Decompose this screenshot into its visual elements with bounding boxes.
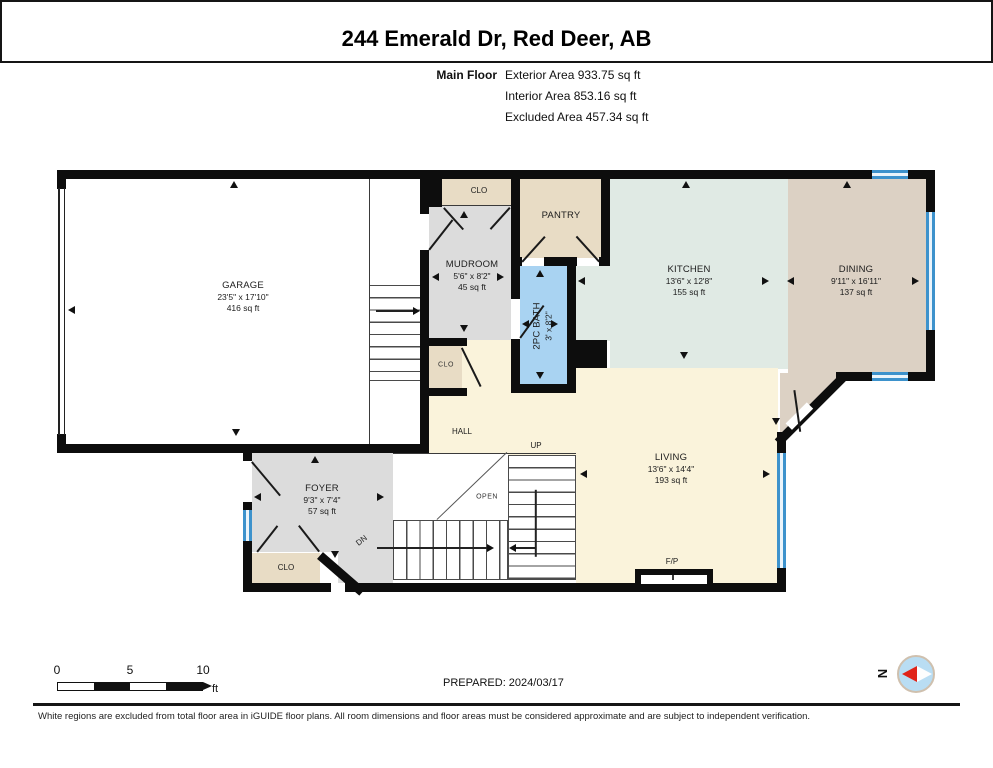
interior-area: Interior Area 853.16 sq ft [505,89,636,103]
dimension-arrow [843,181,851,188]
dimension-arrow [772,418,780,425]
wall-segment [345,583,786,592]
floor-label: Main Floor [436,68,497,82]
excluded-area: Excluded Area 457.34 sq ft [505,110,648,124]
fireplace-inner [641,575,707,584]
wall-segment [424,388,467,396]
disclaimer-text: White regions are excluded from total fl… [38,711,810,722]
window [243,510,252,541]
room-label-living: LIVING 13'6" x 14'4" 193 sq ft [648,452,695,486]
garage-door-line [64,188,66,435]
room-label-mudroom: MUDROOM 5'6" x 8'2" 45 sq ft [446,259,499,293]
dimension-arrow [460,211,468,218]
dimension-arrow [68,306,75,314]
dimension-arrow [912,277,919,285]
dimension-arrow [232,429,240,436]
scale-bar-tip [203,682,212,690]
wall-segment [567,257,576,393]
floorplan-page: 244 Emerald Dr, Red Deer, AB Main Floor … [0,0,993,768]
dimension-arrow [680,352,688,359]
wall-segment [570,340,607,368]
wall-segment [57,170,66,189]
room-label-pantry: PANTRY [542,210,581,222]
dimension-arrow [682,181,690,188]
page-title: 244 Emerald Dr, Red Deer, AB [0,26,993,52]
up-stair-arrowhead [509,544,516,552]
up-stair-arrow-stub [516,547,536,549]
wall-segment [511,170,520,299]
compass-needle-south [917,666,932,682]
wall-segment [420,170,429,214]
room-label-closet-foyer: CLO [278,563,294,573]
dimension-arrow [763,470,770,478]
wall-segment [243,502,252,510]
wall-segment [511,384,576,393]
scale-bar [57,682,203,691]
dn-stair-arrow-line [377,547,488,549]
dimension-arrow [331,551,339,558]
wall-segment [57,170,872,179]
wall-segment [243,444,252,461]
window [777,453,786,568]
garage-door-line [58,188,60,435]
dimension-arrow [578,277,585,285]
dimension-arrow [460,325,468,332]
dimension-arrow [377,493,384,501]
window [926,212,935,330]
wall-segment [601,170,610,266]
wall-segment [424,338,467,346]
dimension-arrow [311,456,319,463]
wall-segment [243,583,331,592]
compass-north-label: N [875,669,890,678]
dn-stair-arrowhead [487,544,494,552]
scale-unit: ft [212,683,218,695]
compass-needle-north [902,666,917,682]
title-rule [0,61,993,63]
prepared-date: PREPARED: 2024/03/17 [443,677,564,689]
fireplace-tick [672,575,674,580]
closet-divider-line [442,205,511,206]
footer-rule [33,703,960,706]
dimension-arrow [536,372,544,379]
dimension-arrow [522,320,529,328]
wall-segment [243,541,252,592]
wall-segment [511,257,522,266]
room-label-garage: GARAGE 23'5" x 17'10" 416 sq ft [217,280,268,314]
compass-icon [897,655,935,693]
dimension-arrow [432,273,439,281]
stair-label-up: UP [530,441,541,451]
window [872,170,908,179]
room-label-bath: 2PC BATH 3' x 8'2" [531,302,554,349]
dimension-arrow [230,181,238,188]
garage-staircase [370,285,423,381]
room-label-closet-hall: CLO [438,360,454,369]
dimension-arrow [536,270,544,277]
room-label-closet-top: CLO [471,186,487,196]
room-label-dining: DINING 9'11" x 16'11" 137 sq ft [831,264,881,298]
dimension-arrow [580,470,587,478]
garage-stair-arrowhead [413,307,420,315]
wall-segment [908,372,935,381]
wall-segment [926,170,935,212]
hall-floor-east [516,393,576,455]
room-label-kitchen: KITCHEN 13'6" x 12'8" 155 sq ft [666,264,713,298]
dimension-arrow [762,277,769,285]
wall-segment [420,250,429,453]
scale-tick-5: 5 [127,663,134,677]
scale-tick-0: 0 [54,663,61,677]
room-label-hall: HALL [452,427,472,437]
up-staircase [508,455,576,580]
wall-segment [599,257,610,266]
page-border-top [0,0,993,2]
stair-open-void [393,453,508,520]
room-label-foyer: FOYER 9'3" x 7'4" 57 sq ft [303,483,340,517]
wall-segment [777,432,786,453]
exterior-area: Exterior Area 933.75 sq ft [505,68,640,82]
wall-segment [429,170,442,207]
scale-tick-10: 10 [196,663,209,677]
garage-stair-arrow-line [376,310,414,312]
stair-label-open: OPEN [476,492,498,501]
window [872,372,908,381]
stair-top-edge [393,453,576,454]
dimension-arrow [787,277,794,285]
dimension-arrow [254,493,261,501]
fireplace-label: F/P [666,557,678,567]
